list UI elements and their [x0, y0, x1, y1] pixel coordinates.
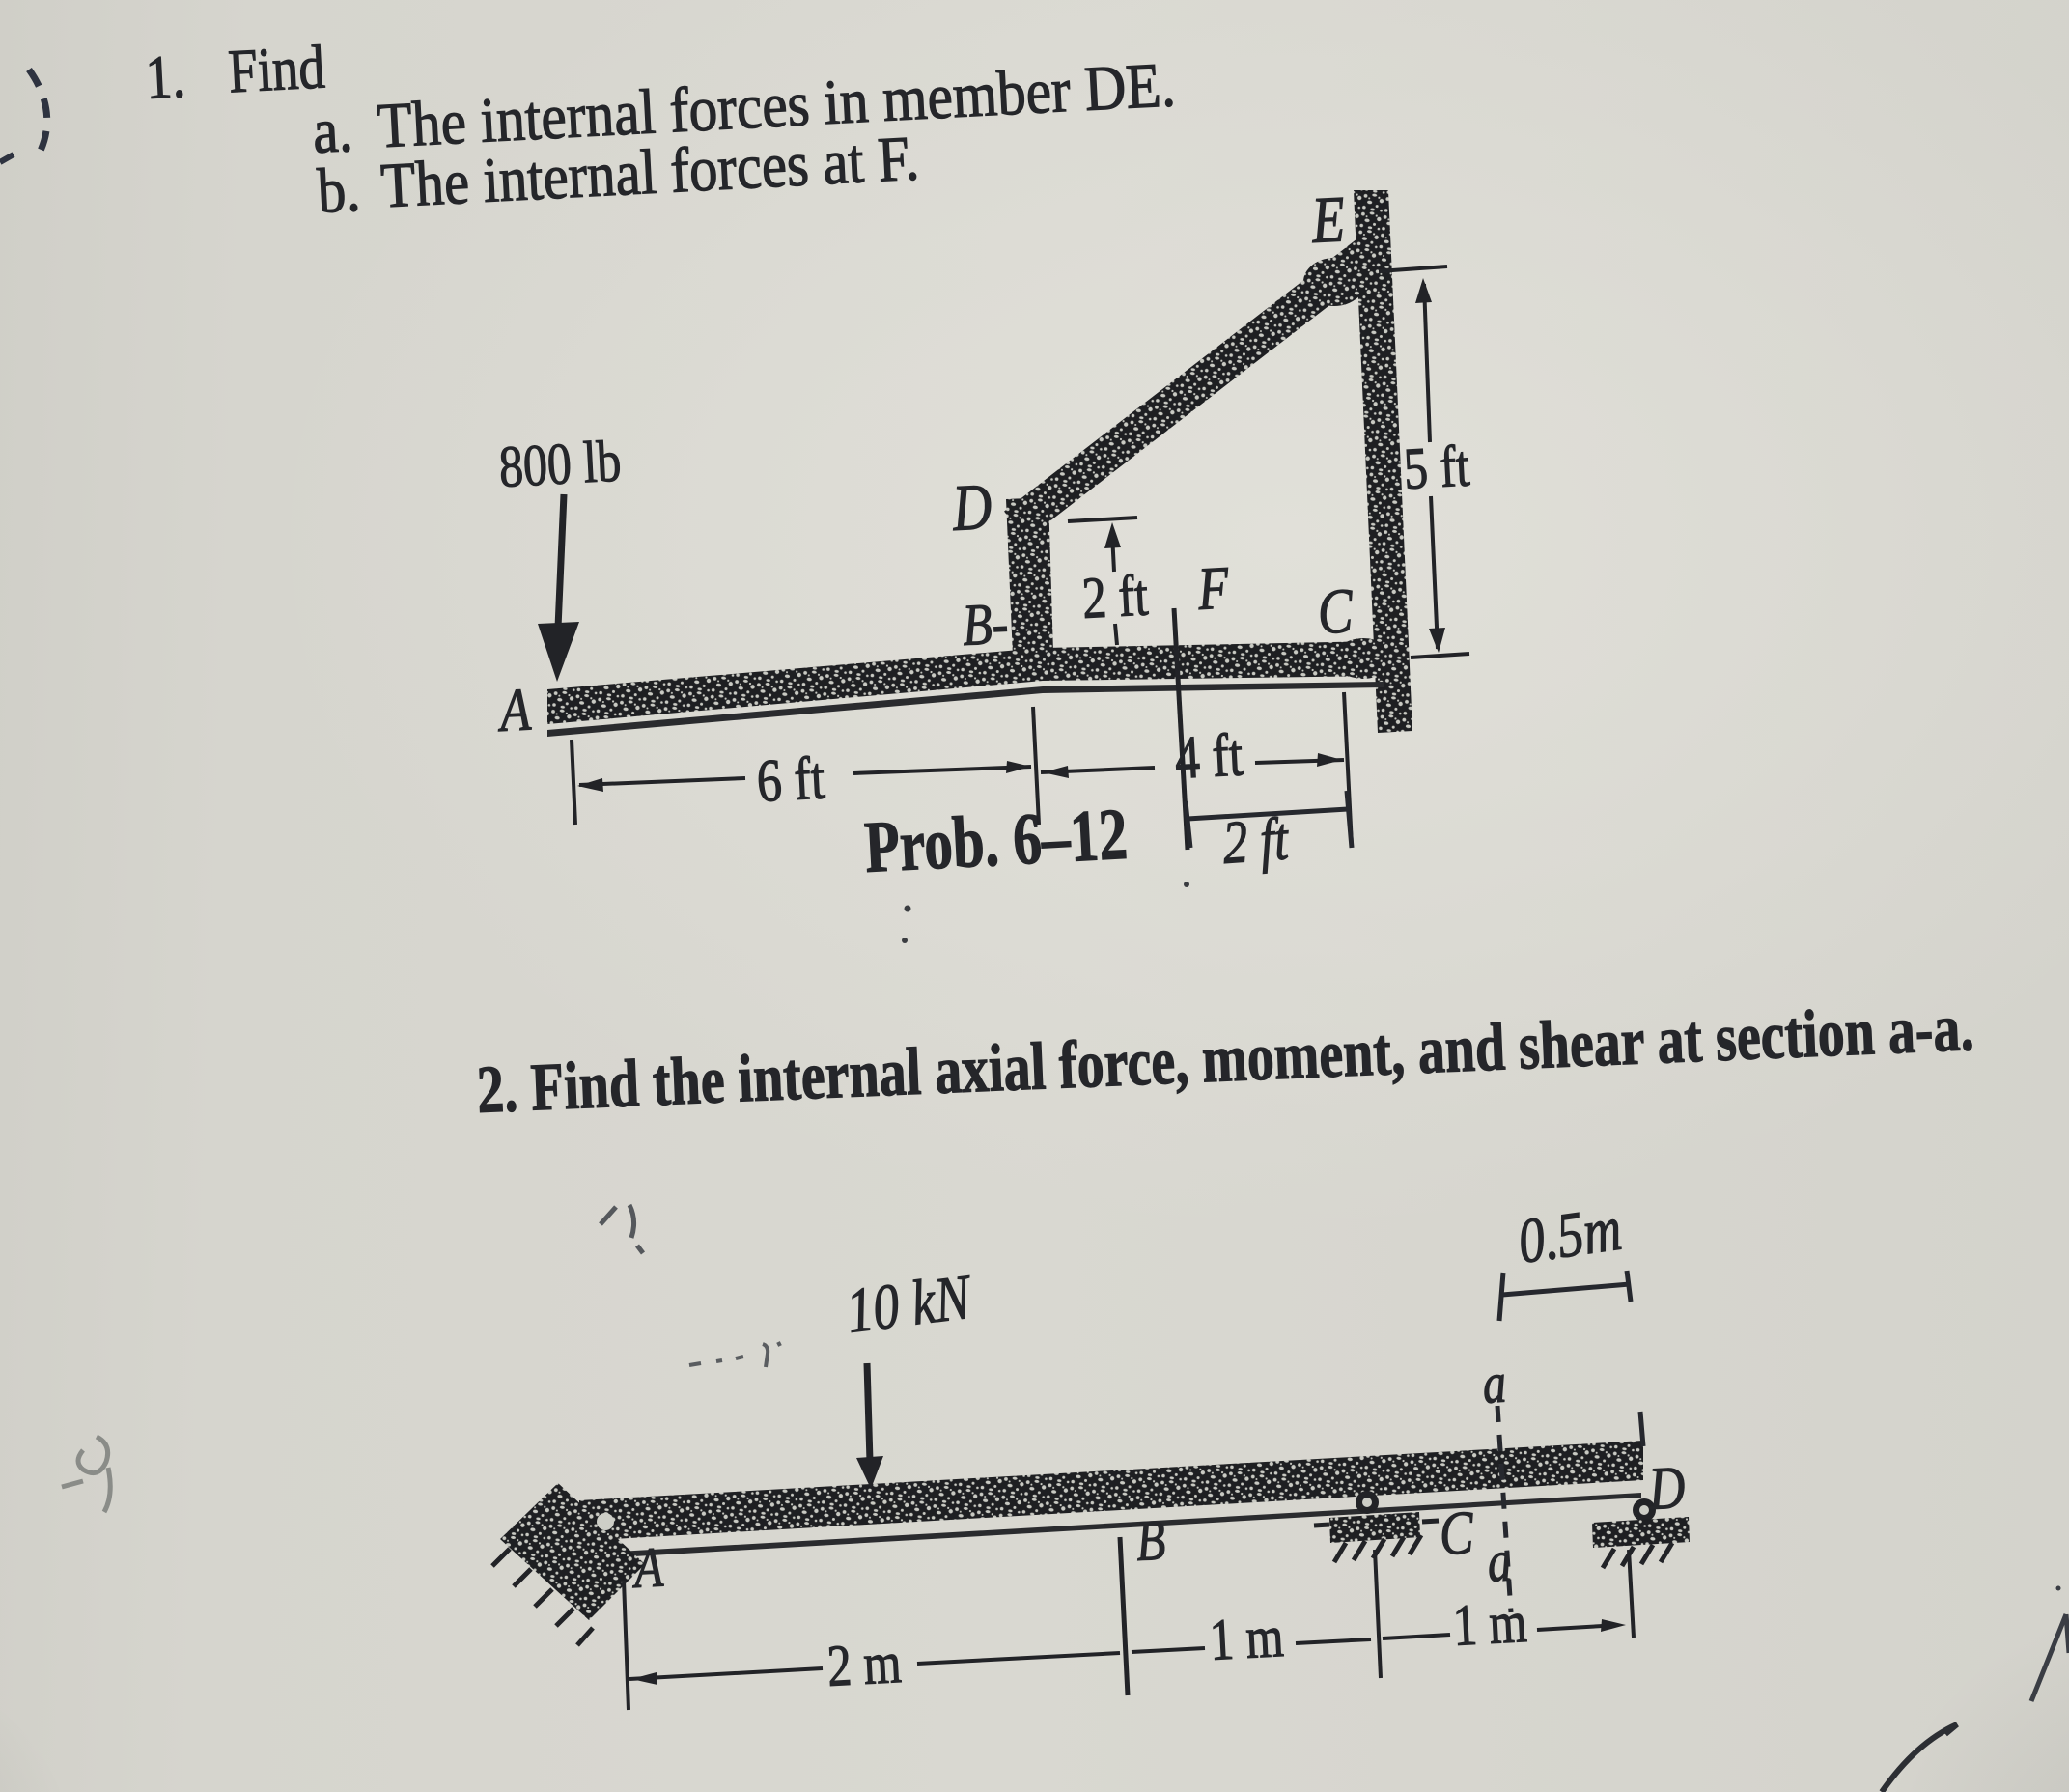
svg-text:2 m: 2 m — [825, 1630, 903, 1699]
svg-text:10 kN: 10 kN — [843, 1261, 977, 1347]
svg-text:B: B — [1134, 1507, 1167, 1573]
svg-text:800 lb: 800 lb — [497, 429, 623, 500]
svg-text:Find: Find — [227, 32, 326, 105]
svg-text:0.5m: 0.5m — [1514, 1193, 1626, 1277]
svg-text:C: C — [1438, 1498, 1476, 1568]
svg-text:4 ft: 4 ft — [1173, 722, 1244, 792]
svg-text:b.: b. — [316, 154, 362, 227]
svg-text:5 ft: 5 ft — [1402, 434, 1471, 502]
svg-text:2 ft: 2 ft — [1220, 806, 1292, 878]
svg-text:E: E — [1309, 183, 1347, 257]
svg-text:D: D — [950, 471, 993, 545]
svg-text:F: F — [1195, 555, 1231, 624]
svg-text:D: D — [1646, 1454, 1687, 1523]
svg-text:a: a — [1485, 1528, 1514, 1595]
svg-text:2 ft: 2 ft — [1080, 563, 1150, 631]
svg-text:1 m: 1 m — [1208, 1604, 1285, 1673]
svg-text:1.: 1. — [144, 42, 186, 112]
svg-text:1 m: 1 m — [1451, 1589, 1528, 1659]
svg-text:Prob. 6–12: Prob. 6–12 — [862, 793, 1129, 888]
svg-text:2. Find the internal axial for: 2. Find the internal axial force, moment… — [475, 990, 1974, 1127]
svg-text:6 ft: 6 ft — [755, 745, 826, 815]
svg-text:a: a — [1480, 1351, 1508, 1415]
svg-text:C: C — [1316, 575, 1356, 648]
svg-text:A: A — [630, 1535, 666, 1600]
svg-text:B-: B- — [961, 591, 1010, 658]
svg-text:A: A — [495, 677, 533, 745]
